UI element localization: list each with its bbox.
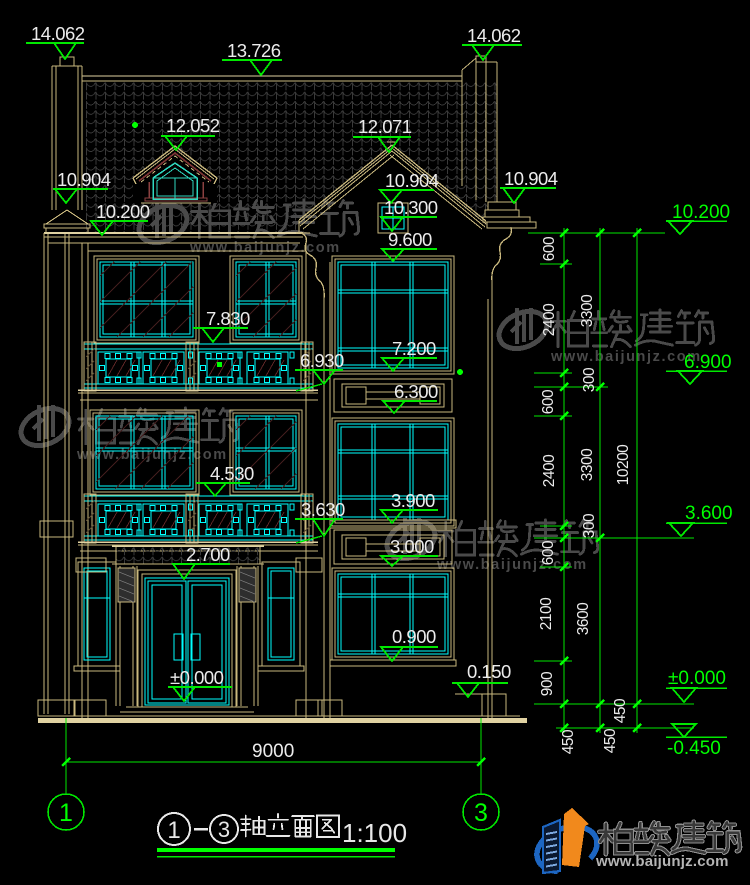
svg-text:300: 300	[581, 513, 598, 538]
svg-text:6.300: 6.300	[394, 381, 438, 402]
svg-text:2400: 2400	[541, 454, 558, 487]
svg-text:9000: 9000	[252, 741, 294, 762]
svg-text:7.200: 7.200	[392, 338, 436, 359]
svg-text:2400: 2400	[541, 303, 558, 336]
svg-text:www.baijunjz.com: www.baijunjz.com	[550, 349, 702, 365]
svg-text:14.062: 14.062	[31, 23, 85, 44]
svg-text:450: 450	[560, 729, 577, 754]
svg-text:3.630: 3.630	[301, 499, 345, 520]
svg-text:600: 600	[541, 236, 558, 261]
svg-text:0.900: 0.900	[392, 626, 436, 647]
svg-text:0.150: 0.150	[467, 661, 511, 682]
svg-text:12.052: 12.052	[166, 115, 220, 136]
svg-text:3600: 3600	[575, 602, 592, 635]
svg-text:3300: 3300	[579, 294, 596, 327]
svg-text:10200: 10200	[615, 444, 632, 485]
svg-text:3300: 3300	[579, 448, 596, 481]
svg-text:±0.000: ±0.000	[170, 667, 224, 688]
svg-text:10.904: 10.904	[57, 169, 111, 190]
svg-text:10.300: 10.300	[384, 197, 438, 218]
svg-text:3.900: 3.900	[391, 490, 435, 511]
svg-text:www.baijunjz.com: www.baijunjz.com	[595, 853, 729, 870]
svg-text:7.830: 7.830	[206, 308, 250, 329]
svg-text:1: 1	[167, 817, 180, 844]
svg-text:2100: 2100	[538, 597, 555, 630]
svg-text:13.726: 13.726	[227, 40, 281, 61]
svg-text:3.000: 3.000	[390, 536, 434, 557]
svg-text:10.904: 10.904	[504, 168, 558, 189]
svg-text:450: 450	[602, 728, 619, 753]
svg-text:600: 600	[540, 389, 557, 414]
svg-text:900: 900	[539, 671, 556, 696]
svg-text:600: 600	[540, 540, 557, 565]
svg-text:12.071: 12.071	[358, 116, 412, 137]
svg-text:300: 300	[581, 367, 598, 392]
svg-text:450: 450	[612, 698, 629, 723]
svg-text:10.904: 10.904	[385, 170, 439, 191]
svg-text:1: 1	[59, 799, 73, 827]
svg-text:3.600: 3.600	[685, 503, 733, 524]
svg-text:14.062: 14.062	[467, 25, 521, 46]
svg-text:6.930: 6.930	[300, 350, 344, 371]
svg-text:10.200: 10.200	[96, 201, 150, 222]
svg-text:4.530: 4.530	[210, 463, 254, 484]
svg-text:3: 3	[218, 817, 230, 842]
svg-text:2.700: 2.700	[186, 544, 230, 565]
svg-text:6.900: 6.900	[684, 352, 732, 373]
svg-text:10.200: 10.200	[672, 202, 730, 223]
svg-text:3: 3	[474, 799, 488, 827]
svg-text:±0.000: ±0.000	[668, 668, 726, 689]
svg-text:1:100: 1:100	[342, 818, 407, 848]
svg-text:9.600: 9.600	[388, 229, 432, 250]
svg-text:-0.450: -0.450	[667, 738, 721, 759]
